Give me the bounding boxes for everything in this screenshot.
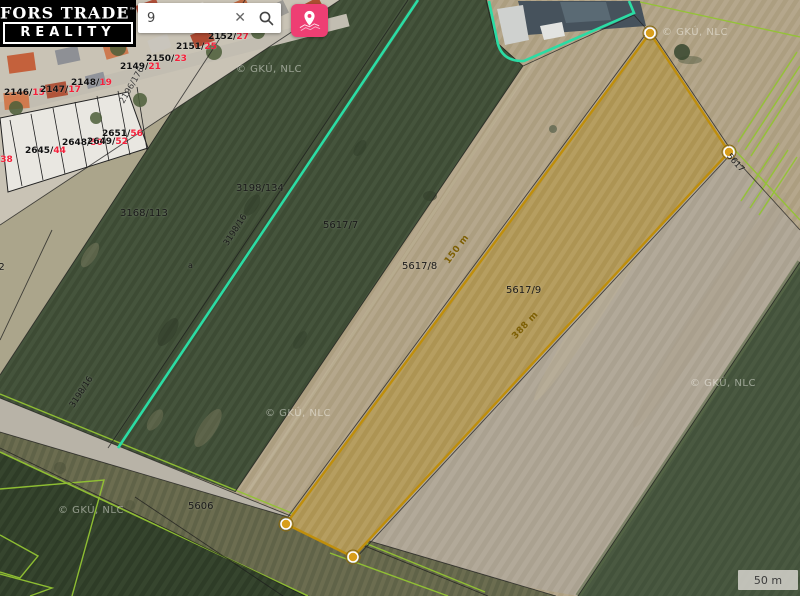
map-application: 3198/1343168/1135617/75617/85617/9560612…	[0, 0, 800, 596]
search-button[interactable]	[252, 3, 281, 33]
map-pin-icon	[297, 8, 322, 33]
trademark-symbol: ™	[129, 7, 136, 14]
map-marker-button[interactable]	[291, 4, 328, 37]
search-icon	[258, 10, 275, 27]
map-canvas[interactable]	[0, 0, 800, 596]
search-input[interactable]	[138, 11, 228, 26]
map-scale-bar: 50 m	[738, 570, 798, 590]
clear-search-button[interactable]: ✕	[228, 3, 252, 33]
brand-name: FORS TRADE	[0, 3, 129, 22]
brand-logo-line1: FORS TRADE™	[0, 0, 136, 22]
search-bar: ✕	[138, 3, 281, 33]
brand-logo-line2: REALITY	[3, 22, 133, 44]
brand-logo: FORS TRADE™ REALITY	[0, 0, 136, 47]
